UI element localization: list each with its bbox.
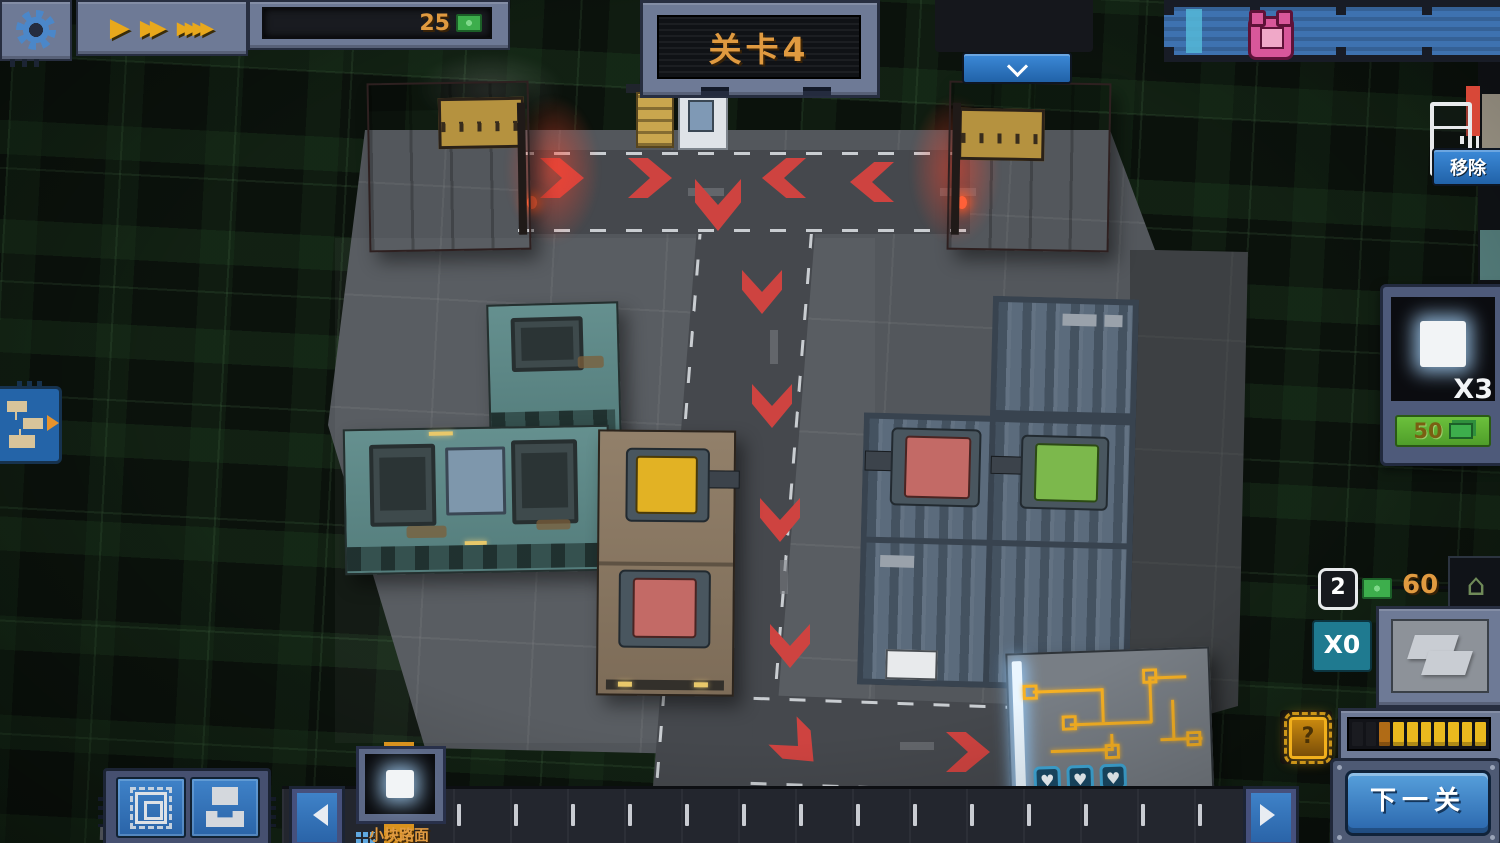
- level-title: 关卡4: [709, 23, 810, 71]
- slot-tick: [685, 804, 689, 826]
- chevron-down-icon: [1007, 56, 1028, 77]
- cards-icon: [1421, 651, 1473, 675]
- progress-cell: [1448, 722, 1459, 746]
- level-screen: 关卡4: [657, 15, 861, 79]
- speed-2x-button[interactable]: ▶▶: [140, 16, 167, 41]
- slot-tick: [628, 804, 632, 826]
- combo-counter: X0: [1312, 620, 1372, 672]
- enemy-preview-icon: [1248, 16, 1294, 60]
- road-tile-icon: [386, 770, 414, 798]
- card-price: 50: [1413, 419, 1442, 443]
- price-bar: 50: [1395, 415, 1491, 447]
- slot-tick: [1084, 804, 1088, 826]
- lane-mark: [780, 560, 788, 594]
- wave-income-value: 60: [1402, 570, 1438, 600]
- progress-cell: [1352, 722, 1363, 746]
- road-tile-icon: [1420, 321, 1466, 367]
- progress-cell: [1421, 722, 1432, 746]
- money-stack-icon: [1449, 423, 1473, 439]
- mystery-chip-button[interactable]: ?: [1280, 710, 1332, 764]
- progress-cell: [1407, 722, 1418, 746]
- card-preview: X3: [1391, 297, 1495, 401]
- gate-crate: [636, 92, 674, 148]
- scroll-left-button[interactable]: [289, 786, 345, 843]
- arrow-left-icon: [302, 804, 328, 826]
- scroll-right-button[interactable]: [1243, 786, 1299, 843]
- teal-container-small: [486, 301, 622, 443]
- spawn-hatch: [958, 108, 1045, 161]
- money-icon: [456, 14, 482, 32]
- progress-cell: [1462, 722, 1473, 746]
- cards-panel-button[interactable]: [1376, 606, 1500, 708]
- slot-tick: [742, 804, 746, 826]
- arrow-right-icon: [1260, 804, 1286, 826]
- money-icon: [1362, 578, 1392, 599]
- slot-tick: [913, 804, 917, 826]
- spawn-container-right: [947, 81, 1112, 253]
- tech-tree-button[interactable]: [0, 386, 62, 464]
- lane-mark: [770, 330, 778, 364]
- progress-cell: [1366, 722, 1377, 746]
- spawn-hatch: [438, 97, 525, 149]
- money-panel: 25: [248, 0, 510, 50]
- red-turret[interactable]: [632, 578, 697, 639]
- wave-preview-panel: [935, 0, 1093, 52]
- remove-button[interactable]: 移除: [1432, 148, 1500, 186]
- selected-card[interactable]: 小块路面: [352, 742, 464, 843]
- next-level-button[interactable]: 下一关: [1345, 770, 1491, 836]
- spawn-container-left: [367, 81, 532, 253]
- wave-number-badge: 2: [1318, 568, 1358, 610]
- progress-cell: [1475, 722, 1486, 746]
- settings-panel: [0, 0, 72, 61]
- slot-tick: [970, 804, 974, 826]
- red-turret[interactable]: [904, 436, 972, 500]
- gear-icon[interactable]: [16, 10, 56, 50]
- slot-tick: [1198, 804, 1202, 826]
- remove-label: 移除: [1450, 154, 1486, 180]
- selected-item-label: 小块路面: [369, 824, 429, 843]
- chip-icon: ?: [1289, 717, 1327, 759]
- slot-tick: [856, 804, 860, 826]
- slot-tick: [1141, 804, 1145, 826]
- turret-truck: [596, 429, 736, 696]
- next-level-frame: 下一关: [1330, 758, 1500, 843]
- speed-3x-button[interactable]: ▶▶▶▶: [177, 18, 214, 39]
- progress-cell: [1379, 722, 1390, 746]
- card-quantity: X3: [1453, 374, 1493, 405]
- collapse-button[interactable]: [962, 52, 1072, 84]
- speed-panel: ▶ ▶▶ ▶▶▶▶: [76, 0, 248, 56]
- panel-notch: [10, 59, 46, 67]
- selected-label-row: 小块路面: [354, 824, 464, 843]
- level-banner: 关卡4: [640, 0, 880, 98]
- neon-edge: [1012, 661, 1027, 799]
- bottom-left-panel: [103, 768, 271, 843]
- slot-tick: [514, 804, 518, 826]
- chip-inventory-button[interactable]: [116, 777, 186, 838]
- gate-machine: [678, 90, 728, 150]
- yellow-turret[interactable]: [635, 456, 698, 515]
- progress-cell: [1434, 722, 1445, 746]
- slot-tick: [799, 804, 803, 826]
- container-door: [445, 447, 506, 516]
- money-value: 25: [419, 11, 450, 36]
- lane-mark: [900, 742, 934, 750]
- grid-icon: [356, 832, 361, 837]
- level-progress-bar: [1347, 717, 1491, 751]
- enemy-conveyor: [1164, 0, 1500, 62]
- game-stage: ♥♥♥ ▶ ▶▶ ▶▶▶▶ 25 关卡4: [0, 0, 1500, 843]
- slot-tick: [571, 804, 575, 826]
- conveyor-band: [1186, 9, 1202, 53]
- progress-cell: [1393, 722, 1404, 746]
- vent-box: [885, 649, 938, 680]
- shop-card[interactable]: X3 50: [1380, 284, 1500, 466]
- slot-tick: [1027, 804, 1031, 826]
- flowchart-icon: [7, 401, 27, 412]
- green-turret[interactable]: [1034, 443, 1099, 503]
- expand-arrow-icon: [47, 415, 67, 431]
- chip-icon: [135, 792, 167, 824]
- merge-icon: [212, 787, 238, 805]
- teal-container-large: [343, 425, 612, 576]
- block-merge-button[interactable]: [190, 777, 260, 838]
- speed-1x-button[interactable]: ▶: [110, 13, 130, 43]
- edge-building: [1480, 230, 1500, 280]
- money-display: 25: [262, 7, 492, 39]
